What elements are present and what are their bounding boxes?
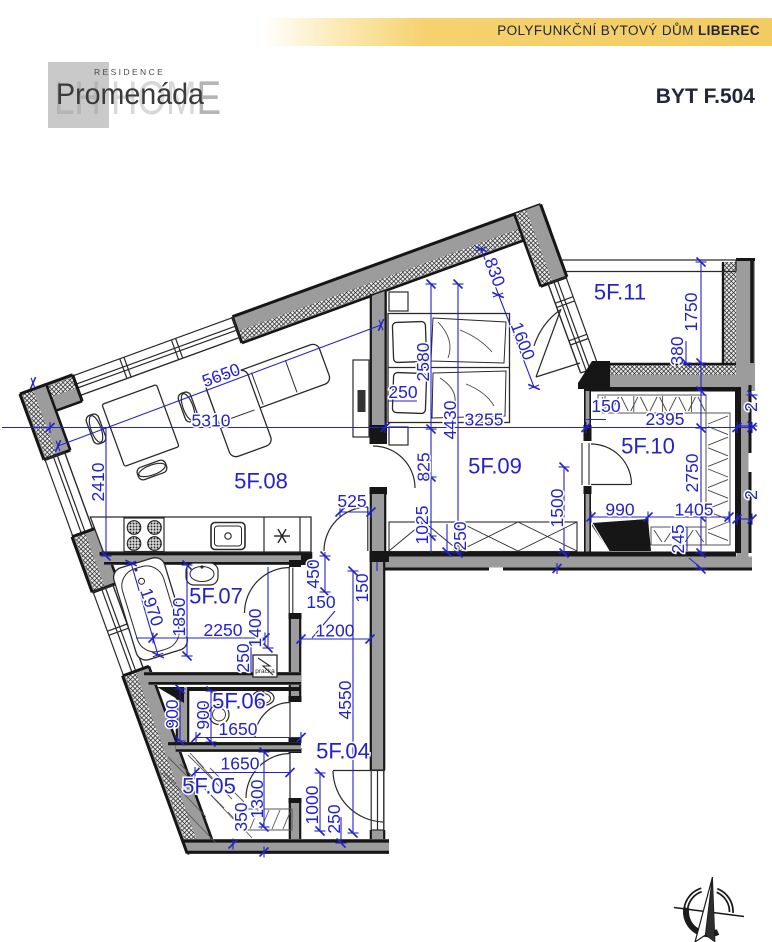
svg-text:250: 250: [450, 521, 470, 550]
svg-text:1400: 1400: [245, 608, 265, 647]
svg-text:1650: 1650: [221, 754, 260, 774]
svg-text:450: 450: [303, 559, 323, 588]
svg-text:245: 245: [668, 524, 688, 553]
svg-text:4430: 4430: [440, 400, 460, 439]
svg-text:2395: 2395: [646, 409, 685, 429]
svg-text:525: 525: [337, 491, 366, 511]
svg-text:1600: 1600: [507, 319, 540, 363]
svg-text:150: 150: [591, 396, 620, 416]
svg-text:5F.07: 5F.07: [189, 584, 243, 609]
svg-text:2410: 2410: [88, 462, 108, 501]
svg-text:150: 150: [306, 592, 335, 612]
svg-text:1025: 1025: [412, 506, 432, 545]
svg-text:1405: 1405: [675, 500, 714, 520]
svg-text:1200: 1200: [316, 621, 355, 641]
svg-text:2250: 2250: [204, 620, 243, 640]
svg-text:990: 990: [605, 500, 634, 520]
svg-text:830: 830: [480, 255, 509, 290]
svg-text:1850: 1850: [169, 597, 189, 636]
svg-text:5F.06: 5F.06: [212, 689, 266, 714]
svg-text:5F.08: 5F.08: [234, 469, 288, 494]
svg-text:2580: 2580: [413, 342, 433, 381]
svg-text:5F.04: 5F.04: [316, 739, 370, 764]
svg-text:5F.10: 5F.10: [621, 434, 675, 459]
svg-text:1000: 1000: [302, 785, 322, 824]
svg-text:1750: 1750: [681, 292, 701, 331]
svg-text:900: 900: [193, 700, 213, 729]
svg-text:250: 250: [388, 382, 417, 402]
svg-text:pračka: pračka: [255, 668, 275, 675]
svg-text:5F.05: 5F.05: [182, 774, 236, 799]
svg-text:150: 150: [352, 573, 372, 602]
svg-text:5F.11: 5F.11: [594, 280, 646, 305]
svg-text:350: 350: [231, 802, 251, 831]
svg-text:3255: 3255: [465, 410, 504, 430]
svg-text:1650: 1650: [219, 719, 258, 739]
svg-text:5F.09: 5F.09: [468, 454, 522, 479]
svg-text:2: 2: [741, 402, 761, 412]
svg-text:900: 900: [162, 699, 182, 728]
svg-text:5310: 5310: [192, 411, 231, 431]
svg-text:4550: 4550: [335, 680, 355, 719]
svg-text:2: 2: [741, 490, 761, 500]
svg-text:1500: 1500: [547, 488, 567, 527]
svg-text:2750: 2750: [682, 453, 702, 492]
svg-text:825: 825: [414, 452, 434, 481]
